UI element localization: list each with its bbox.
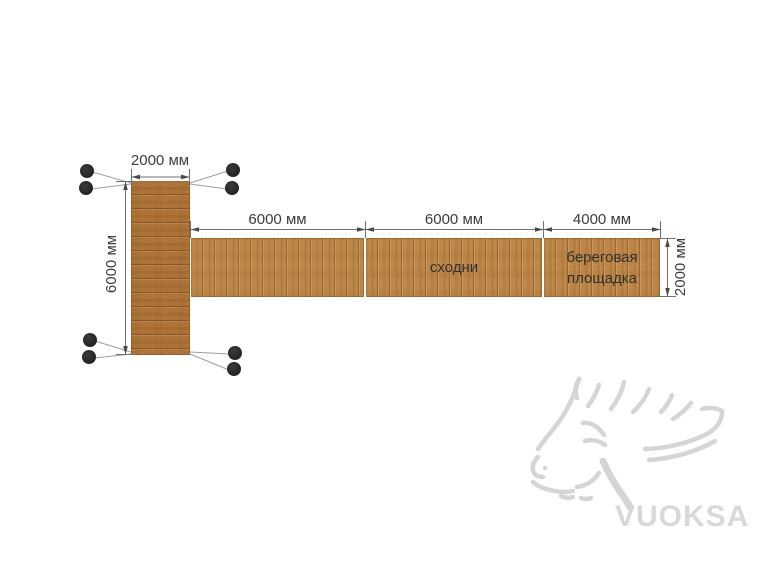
shore-platform-label-line1: береговая (544, 247, 660, 268)
gangway-label: сходни (366, 259, 542, 276)
mooring-float (227, 362, 241, 376)
dim-label-segment-1: 6000 мм (191, 211, 364, 229)
shore-platform-label: береговая площадка (544, 247, 660, 289)
mooring-float (79, 181, 93, 195)
moose-head-icon (533, 379, 722, 507)
mooring-float (228, 346, 242, 360)
mooring-float (225, 181, 239, 195)
mooring-float (83, 333, 97, 347)
watermark-brand-text: VUOKSA (615, 500, 749, 533)
dim-label-shore-segment: 4000 мм (544, 211, 660, 229)
dim-label-segment-2: 6000 мм (366, 211, 542, 229)
shore-platform-label-line2: площадка (544, 268, 660, 289)
mooring-float (226, 163, 240, 177)
mooring-float (82, 350, 96, 364)
dim-top-width (132, 169, 190, 187)
dim-label-platform-length: 6000 мм (103, 219, 121, 309)
mooring-float (80, 164, 94, 178)
watermark: VUOKSA (525, 365, 768, 576)
pontoon-plan-canvas: 2000 мм 6000 мм 6000 мм 6000 мм 4000 мм … (0, 0, 768, 576)
dim-label-platform-width: 2000 мм (100, 152, 220, 170)
dim-label-walkway-width: 2000 мм (672, 222, 690, 312)
